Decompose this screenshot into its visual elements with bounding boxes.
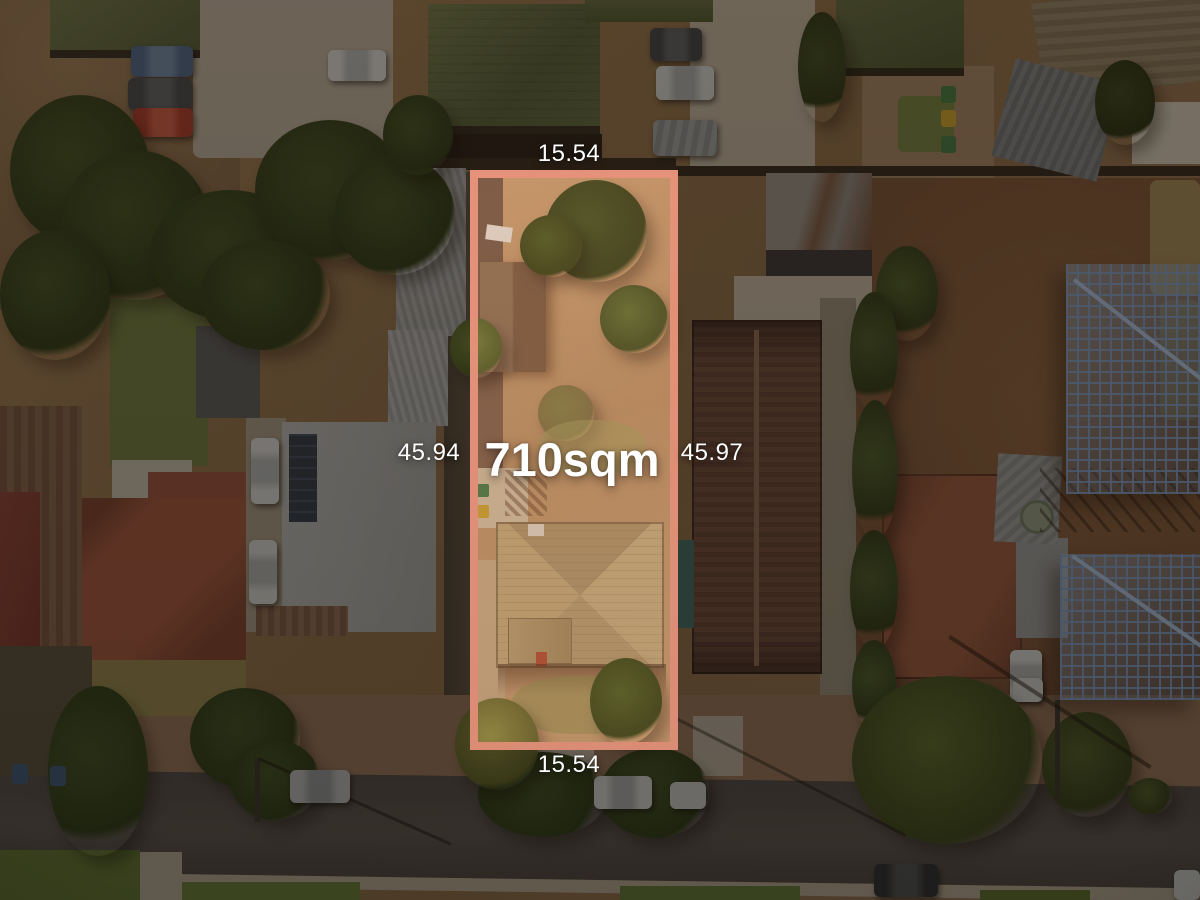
tree [1128, 778, 1172, 814]
car [1174, 870, 1200, 900]
tree [852, 676, 1042, 844]
lot-boundary-overlay [470, 170, 678, 750]
terrain-shape [50, 766, 66, 786]
steel-frame-construction [1066, 264, 1200, 494]
wheelie-bin [941, 136, 956, 153]
covered-trailer [653, 120, 717, 156]
house-roof [585, 0, 713, 22]
terrain-shape [620, 886, 800, 900]
terrain-shape [836, 68, 964, 76]
wheelie-bin [941, 86, 956, 103]
house-roof [388, 330, 448, 426]
aerial-photo: 15.54 45.94 710sqm 45.97 15.54 [0, 0, 1200, 900]
wheelie-bin [941, 110, 956, 127]
terrain-shape [1055, 700, 1060, 800]
tree [1095, 60, 1155, 145]
solar-panels [289, 434, 317, 522]
car [251, 438, 279, 504]
car [128, 78, 192, 110]
terrain-shape [256, 606, 348, 636]
steel-frame-construction [1060, 554, 1200, 700]
car [290, 770, 350, 803]
car [249, 540, 277, 604]
car [133, 108, 193, 137]
terrain-shape [0, 850, 140, 900]
terrain-shape [12, 764, 28, 784]
car [670, 782, 706, 809]
car [650, 28, 702, 61]
tree [850, 530, 898, 650]
terrain-shape [0, 492, 40, 652]
shed-roof [766, 173, 872, 252]
tree [850, 292, 898, 412]
terrain-shape [110, 298, 208, 466]
terrain-shape [678, 540, 694, 628]
car [131, 46, 193, 77]
tree [383, 95, 453, 175]
tree [335, 155, 455, 275]
tree [0, 230, 110, 360]
terrain-shape [255, 758, 260, 822]
terrain-shape [766, 250, 872, 276]
terrain-shape [980, 890, 1090, 900]
terrain-shape [754, 330, 759, 666]
house-roof [50, 0, 200, 52]
tree [798, 12, 846, 122]
car [656, 66, 714, 100]
house-roof [428, 4, 600, 128]
terrain-shape [140, 852, 182, 900]
house-roof [836, 0, 964, 70]
car [874, 864, 938, 897]
house-roof [74, 498, 246, 662]
car [594, 776, 652, 809]
tree [200, 240, 330, 350]
car [328, 50, 386, 81]
terrain-shape [676, 166, 1200, 176]
tree [852, 400, 898, 540]
